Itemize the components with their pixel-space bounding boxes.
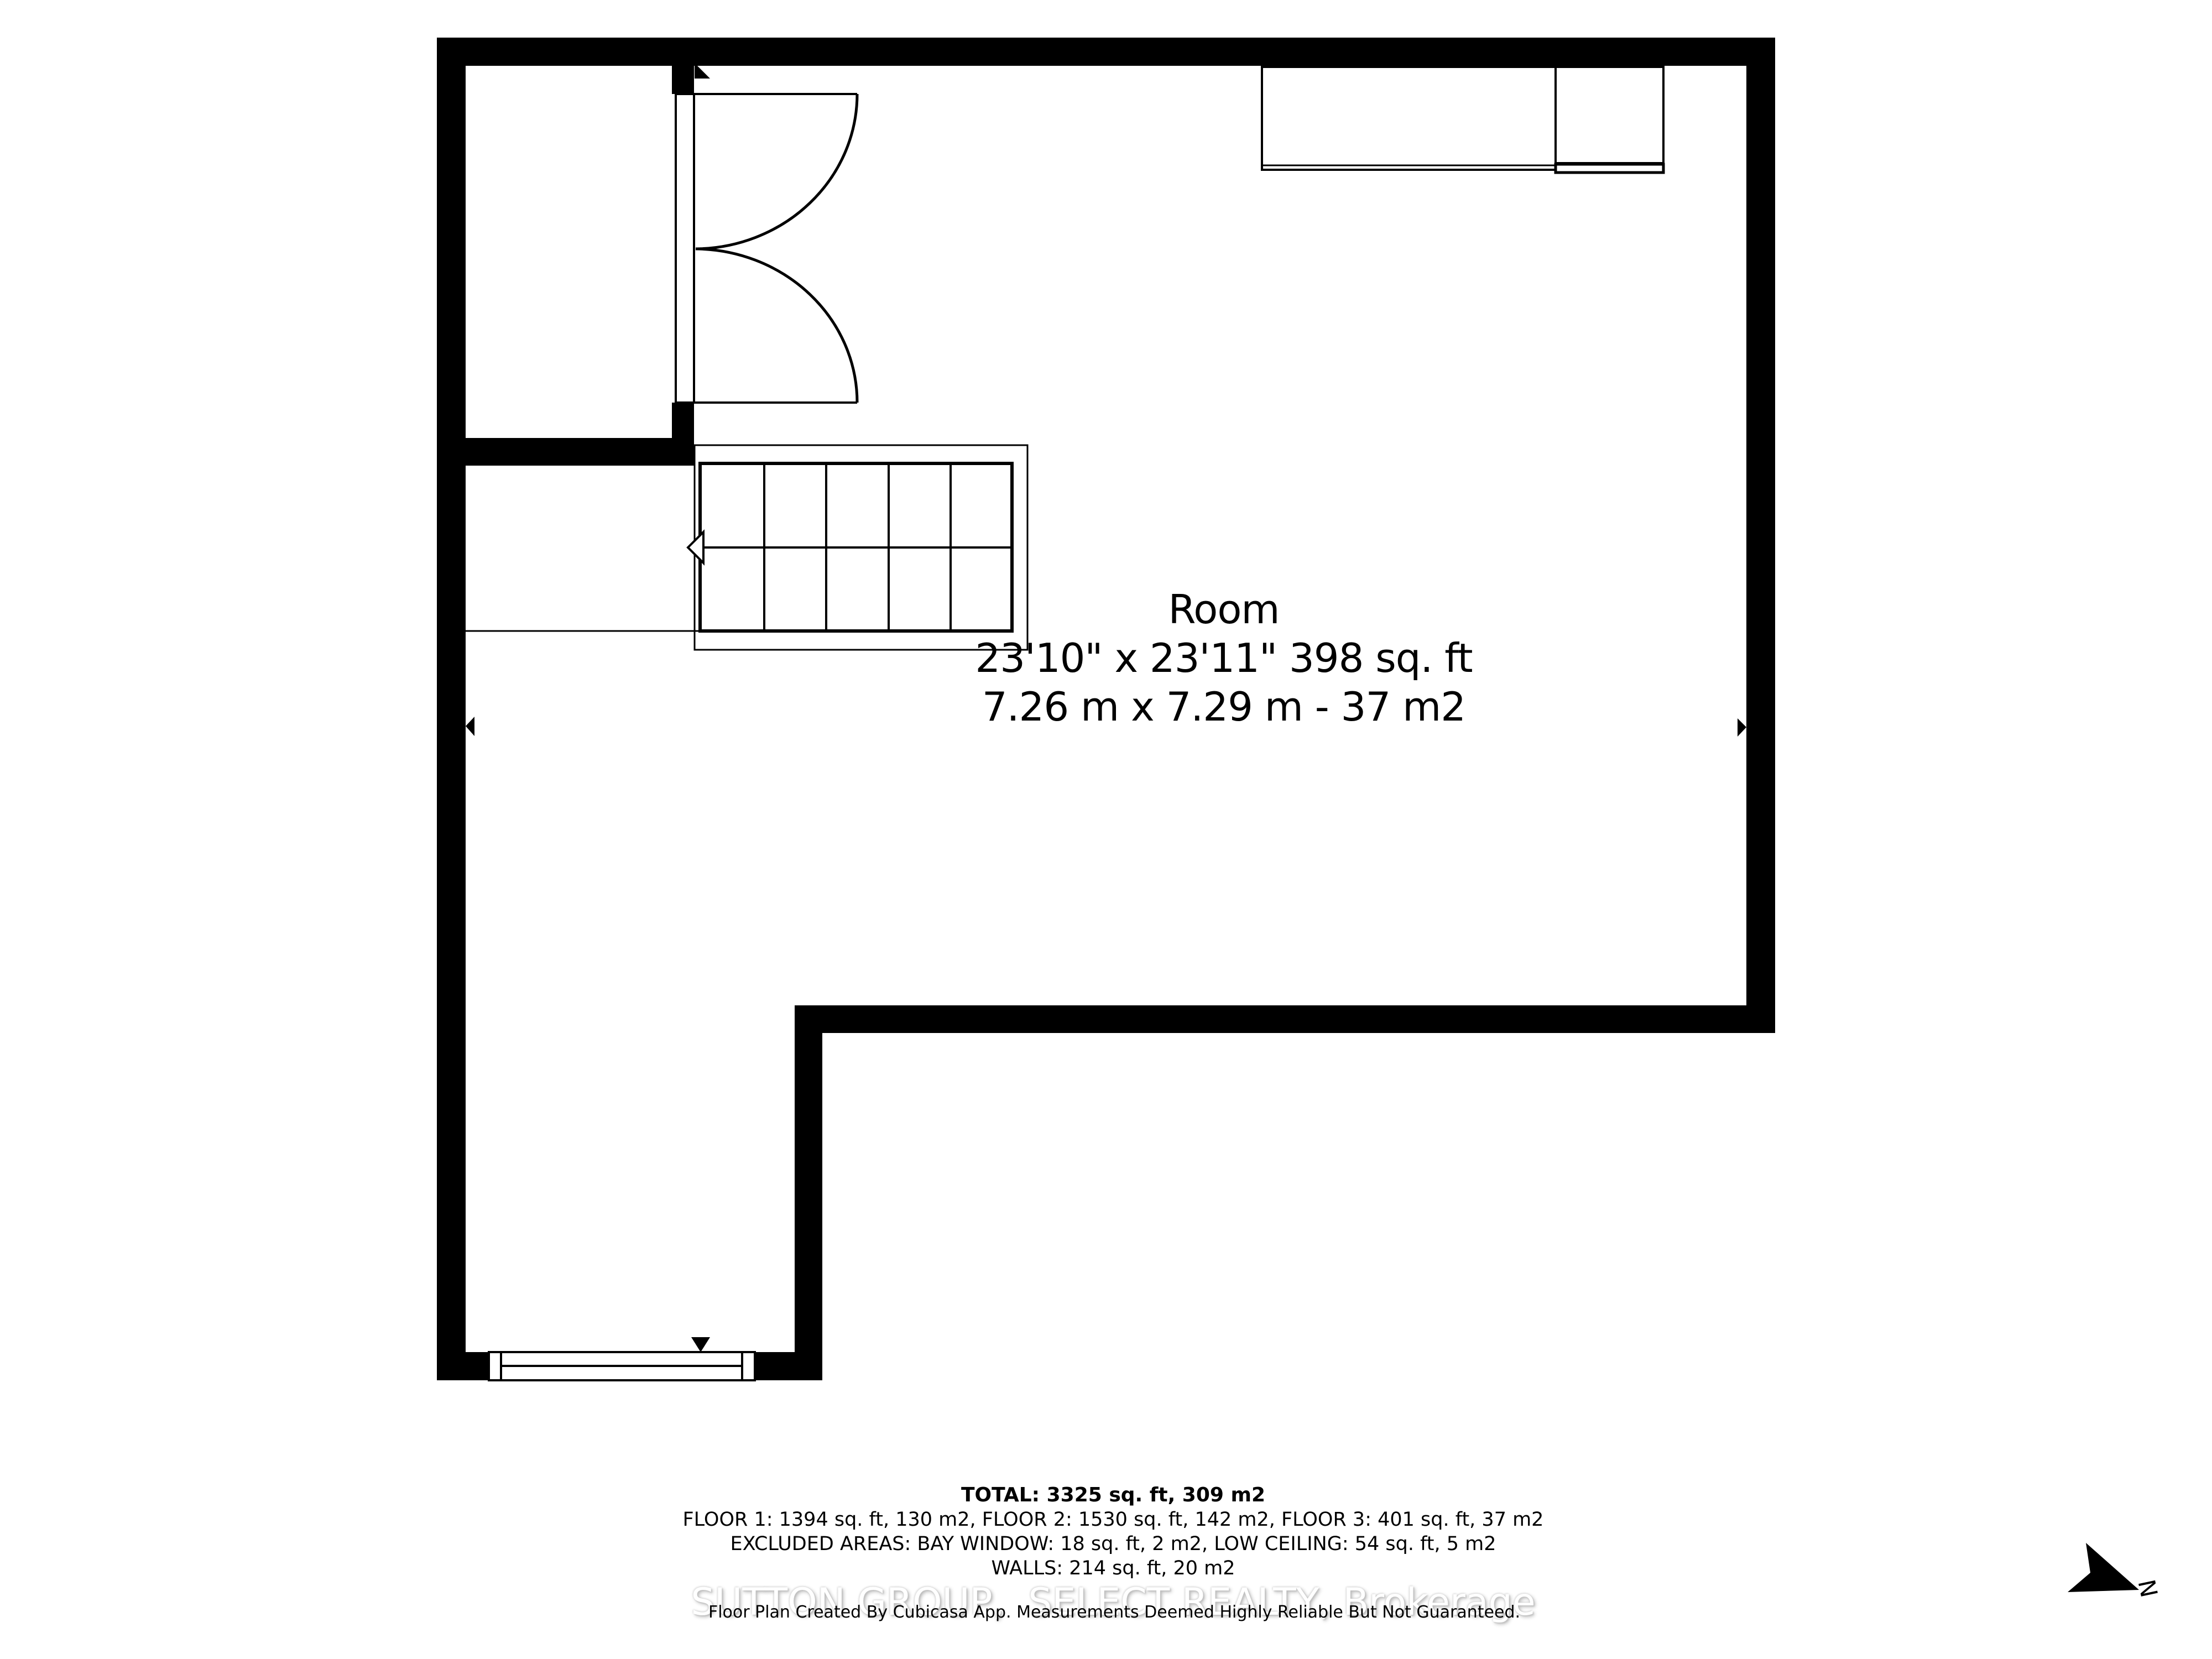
room-dimensions-imperial: 23'10" x 23'11" 398 sq. ft [781, 634, 1666, 682]
closet-wall-stub-top [672, 66, 694, 94]
furniture-cabinet-shelf [1556, 164, 1663, 173]
window [489, 1337, 755, 1380]
room-dimensions-metric: 7.26 m x 7.29 m - 37 m2 [781, 682, 1666, 731]
closet-wall-bottom [437, 438, 694, 466]
summary-floors: FLOOR 1: 1394 sq. ft, 130 m2, FLOOR 2: 1… [560, 1507, 1666, 1532]
door-swing-arc-bottom [696, 249, 857, 403]
furniture [1262, 67, 1663, 173]
furniture-cabinet [1556, 67, 1663, 163]
room-name: Room [781, 585, 1666, 634]
furniture-desk [1262, 67, 1556, 170]
wall-right [1746, 38, 1775, 1033]
wall-top [437, 38, 1775, 66]
wall-left [437, 38, 466, 1380]
door-swing-arc-top [696, 94, 857, 249]
floor-plan-page: { "plan": { "room_label": { "name": "Roo… [0, 0, 2212, 1659]
dimension-arrow-left-icon [466, 717, 474, 736]
stairs-direction-arrow-icon [688, 532, 703, 563]
floor-plan-canvas [0, 0, 2212, 1659]
double-door [676, 63, 857, 403]
disclaimer-text: Floor Plan Created By Cubicasa App. Meas… [0, 1603, 2212, 1622]
room-label: Room 23'10" x 23'11" 398 sq. ft 7.26 m x… [781, 585, 1666, 731]
summary-total: TOTAL: 3325 sq. ft, 309 m2 [560, 1483, 1666, 1507]
door-frame [676, 94, 694, 403]
window-marker-icon [691, 1337, 710, 1352]
summary-excluded: EXCLUDED AREAS: BAY WINDOW: 18 sq. ft, 2… [560, 1532, 1666, 1556]
wall-bottom-right [795, 1005, 1775, 1033]
wall-mid-vertical [795, 1005, 822, 1380]
summary-walls: WALLS: 214 sq. ft, 20 m2 [560, 1556, 1666, 1580]
dimension-arrow-right-icon [1738, 718, 1746, 737]
closet-walls [437, 66, 694, 466]
area-summary: TOTAL: 3325 sq. ft, 309 m2 FLOOR 1: 1394… [560, 1483, 1666, 1580]
